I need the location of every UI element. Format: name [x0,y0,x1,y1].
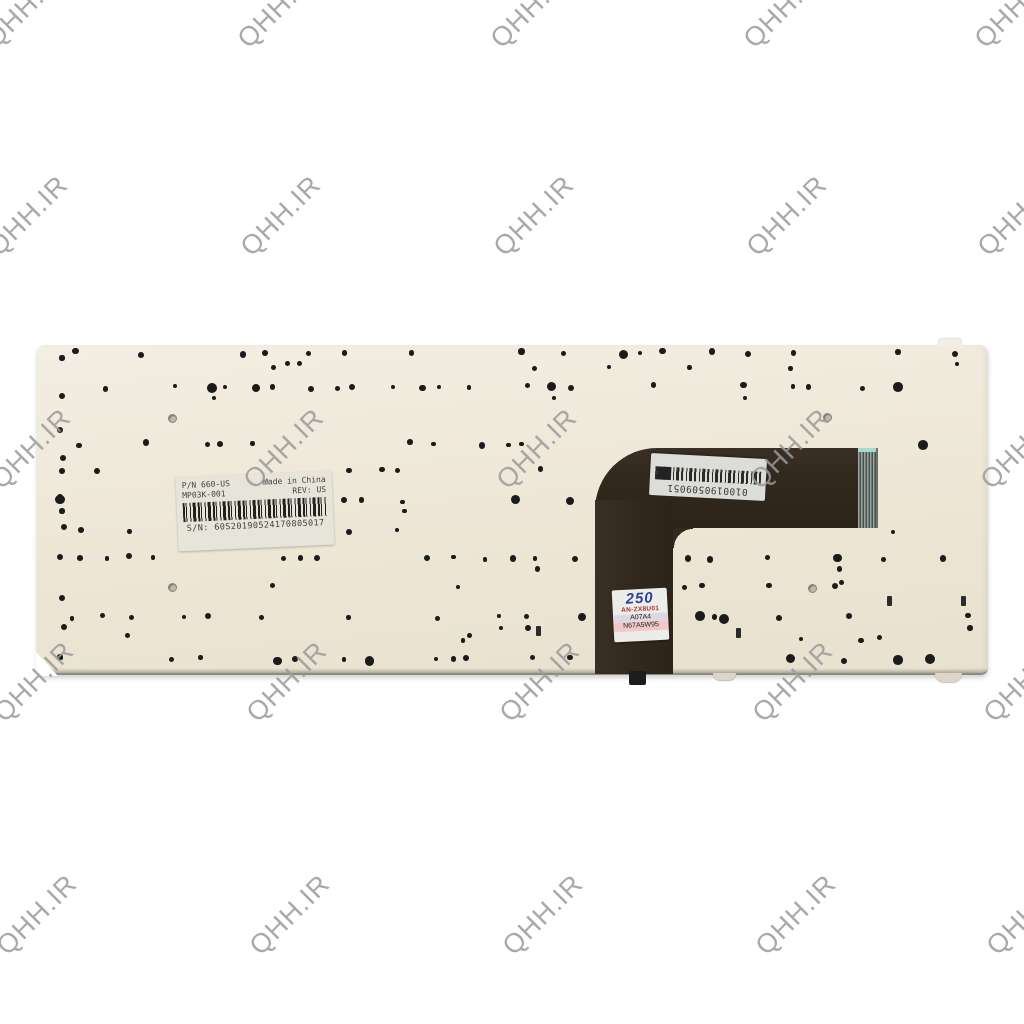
plate-bottom-edge [37,668,988,675]
plate-bottom-bump [713,673,736,680]
cable-barcode-sticker: 0100190509051 [649,453,767,501]
qc-sticker-line4: N67A5W95 [613,621,668,632]
watermark-text: QHH.IR [969,0,1024,54]
watermark-text: QHH.IR [741,170,834,263]
plate-bottom-bump [935,673,962,682]
label-model: MP03K-001 [182,489,231,501]
watermark-text: QHH.IR [738,0,831,54]
watermark-text: QHH.IR [0,869,83,962]
watermark-text: QHH.IR [485,0,578,54]
watermark-text: QHH.IR [235,170,328,263]
part-number-label: P/N 660-US MP03K-001 Made in China REV: … [175,471,334,552]
plate-top-tab [938,339,962,347]
watermark-text: QHH.IR [488,170,581,263]
ribbon-cable-connector-contacts [858,448,878,528]
watermark-text: QHH.IR [0,170,74,263]
watermark-text: QHH.IR [497,869,590,962]
watermark-text: QHH.IR [750,869,843,962]
ribbon-cable-tab [629,671,646,685]
watermark-text: QHH.IR [972,170,1024,263]
product-photo: P/N 660-US MP03K-001 Made in China REV: … [0,0,1024,1024]
watermark-text: QHH.IR [232,0,325,54]
watermark-text: QHH.IR [981,869,1024,962]
qc-sticker: 250 AN-ZX8U01 A07A4 N67A5W95 [612,588,670,643]
watermark-text: QHH.IR [244,869,337,962]
watermark-text: QHH.IR [0,0,71,54]
ribbon-cable-fillet [673,528,693,548]
